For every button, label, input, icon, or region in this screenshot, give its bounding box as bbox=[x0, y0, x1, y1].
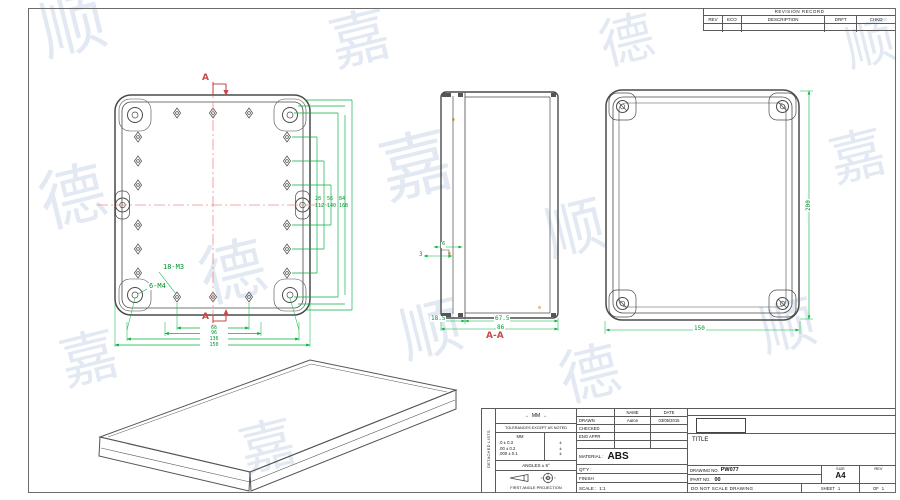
drawn-name: Aaron bbox=[615, 417, 651, 425]
section-marker-top: A bbox=[202, 74, 209, 83]
units-row: → MM ← bbox=[496, 409, 577, 424]
side-view bbox=[606, 90, 799, 320]
tolerance-values: MM .0 ± 0.3 .00 ± 0.2 .000 ± 0.1 bbox=[496, 433, 545, 461]
section-view-label: A-A bbox=[486, 332, 504, 341]
dim-arrow-right-icon: → bbox=[524, 413, 529, 419]
revision-col-rev: REV bbox=[704, 16, 723, 23]
section-lid-dim: 18.5 bbox=[430, 316, 446, 322]
of-label: OF bbox=[873, 486, 879, 491]
side-width-dim: 150 bbox=[693, 326, 706, 332]
drawing-no-label: DRAWING NO. bbox=[690, 468, 719, 473]
part-no-label: /PART NO. bbox=[690, 477, 710, 482]
front-view-dimensions bbox=[115, 100, 352, 347]
tolerance-mark: ± bbox=[545, 451, 576, 457]
size-cell: SIZE A4 bbox=[822, 466, 860, 484]
angles-tolerance: ANGLES ± 5° bbox=[496, 461, 577, 471]
revision-empty-row bbox=[704, 24, 895, 32]
title-label: TITLE bbox=[692, 437, 708, 443]
units-note: MM bbox=[532, 413, 540, 419]
material-value: ABS bbox=[608, 451, 629, 462]
drawn-row: DRAWN Aaron 03/05/2015 bbox=[577, 417, 687, 425]
section-base-dim: 67.5 bbox=[494, 316, 510, 322]
tolerance-row: .000 ± 0.1 bbox=[496, 451, 544, 457]
logo-row bbox=[688, 416, 896, 434]
scale-row: SCALE : 1:1 bbox=[577, 483, 687, 493]
drawing-no-value: PW077 bbox=[721, 467, 739, 473]
drawn-label: DRAWN bbox=[577, 417, 615, 425]
tolerance-table: MM .0 ± 0.3 .00 ± 0.2 .000 ± 0.1 ± ± ± bbox=[496, 433, 577, 461]
no-scale-note: DO NOT SCALE DRAWING bbox=[688, 484, 802, 493]
title-area: TITLE bbox=[688, 434, 896, 466]
tolerance-marks: ± ± ± bbox=[545, 440, 576, 461]
screws-callout: 6-M4 bbox=[148, 283, 167, 290]
front-side-dim: 28 bbox=[315, 197, 321, 202]
front-bottom-dim: 136 bbox=[200, 337, 228, 342]
checked-row: CHECKED bbox=[577, 425, 687, 433]
section-view bbox=[441, 92, 558, 318]
revision-header-row: REV ECO DESCRIPTION DRFT CHKD bbox=[704, 16, 895, 24]
tolerance-units-header: MM bbox=[496, 433, 544, 440]
revision-record-title: REVISION RECORD bbox=[704, 8, 895, 16]
drawing-sheet: 顺 嘉 德 顺 嘉 德 顺 嘉 德 顺 嘉 德 顺 嘉 bbox=[0, 0, 900, 500]
front-bottom-dim: 150 bbox=[200, 343, 228, 348]
material-row: MATERIAL : ABS bbox=[577, 449, 687, 465]
front-side-dim: 84 bbox=[339, 197, 345, 202]
approvals-column: NAME DATE DRAWN Aaron 03/05/2015 CHECKED… bbox=[577, 409, 687, 493]
section-marker-bottom: A bbox=[202, 313, 209, 322]
projection-cell: FIRST ANGLE PROJECTION bbox=[496, 471, 577, 493]
title-top-strip bbox=[688, 409, 896, 416]
date-header: DATE bbox=[651, 409, 687, 417]
front-side-dim: 168 bbox=[339, 204, 348, 209]
drawing-number-cell: DRAWING NO. PW077 /PART NO. 00 bbox=[688, 466, 822, 484]
title-block: DETACHED LISTS → MM ← TOLERANCES EXCEPT … bbox=[481, 408, 895, 492]
checked-label: CHECKED bbox=[577, 425, 615, 433]
bottom-row: DO NOT SCALE DRAWING SHEET 1 OF 1 bbox=[688, 484, 896, 493]
front-side-dim: 112 bbox=[315, 204, 324, 209]
front-side-dim: 140 bbox=[327, 204, 336, 209]
part-no-value: 00 bbox=[714, 477, 720, 483]
title-block-side-strip: DETACHED LISTS bbox=[482, 409, 496, 493]
revision-record-table: REVISION RECORD REV ECO DESCRIPTION DRFT… bbox=[703, 8, 895, 31]
sheet-value: 1 bbox=[838, 486, 840, 491]
projection-note: FIRST ANGLE PROJECTION bbox=[496, 485, 576, 490]
revision-col-eco: ECO bbox=[723, 16, 742, 23]
isometric-view bbox=[99, 360, 456, 491]
section-step-top-dim: 6 bbox=[441, 242, 446, 248]
title-column: TITLE DRAWING NO. PW077 /PART NO. 00 SIZ… bbox=[687, 409, 896, 493]
rev-cell: REV bbox=[860, 466, 896, 484]
sheet-label: SHEET bbox=[821, 486, 835, 491]
approvals-header-row: NAME DATE bbox=[577, 409, 687, 417]
tolerance-note: TOLERANCES EXCEPT AS NOTED bbox=[496, 424, 577, 433]
part-no-row: /PART NO. 00 bbox=[688, 475, 821, 484]
eng-appr-row: ENG APPR bbox=[577, 433, 687, 441]
first-angle-projection-icon bbox=[504, 472, 568, 484]
name-header: NAME bbox=[615, 409, 651, 417]
dim-arrow-left-icon: ← bbox=[543, 413, 548, 419]
drawn-date: 03/05/2015 bbox=[651, 417, 687, 425]
eng-appr-label: ENG APPR bbox=[577, 433, 615, 441]
revision-col-description: DESCRIPTION bbox=[742, 16, 826, 23]
material-label: MATERIAL : bbox=[579, 454, 604, 459]
centerlines bbox=[97, 82, 328, 328]
scale-label: SCALE : bbox=[579, 486, 596, 491]
section-cut-marks bbox=[213, 82, 229, 323]
of-value: 1 bbox=[882, 486, 884, 491]
size-value: A4 bbox=[822, 471, 859, 480]
of-cell: OF 1 bbox=[860, 484, 896, 493]
revision-col-drft: DRFT bbox=[825, 16, 857, 23]
bosses-callout: 18-M3 bbox=[162, 264, 185, 271]
scale-value: 1:1 bbox=[599, 486, 605, 491]
drawing-no-row: DRAWING NO. PW077 bbox=[688, 466, 821, 475]
qty-row: QT'Y : bbox=[577, 465, 687, 474]
revision-col-chkd: CHKD bbox=[857, 16, 895, 23]
front-side-dim: 56 bbox=[327, 197, 333, 202]
approvals-empty-row bbox=[577, 441, 687, 449]
side-strip-text: DETACHED LISTS bbox=[487, 425, 491, 473]
sheet-cell: SHEET 1 bbox=[802, 484, 860, 493]
rev-label: REV bbox=[860, 466, 896, 471]
logo-box bbox=[696, 418, 746, 433]
finish-row: FINISH bbox=[577, 474, 687, 483]
side-height-dim: 200 bbox=[806, 199, 812, 212]
numbers-row: DRAWING NO. PW077 /PART NO. 00 SIZE A4 R… bbox=[688, 466, 896, 484]
section-step-dim: 3 bbox=[418, 252, 424, 258]
